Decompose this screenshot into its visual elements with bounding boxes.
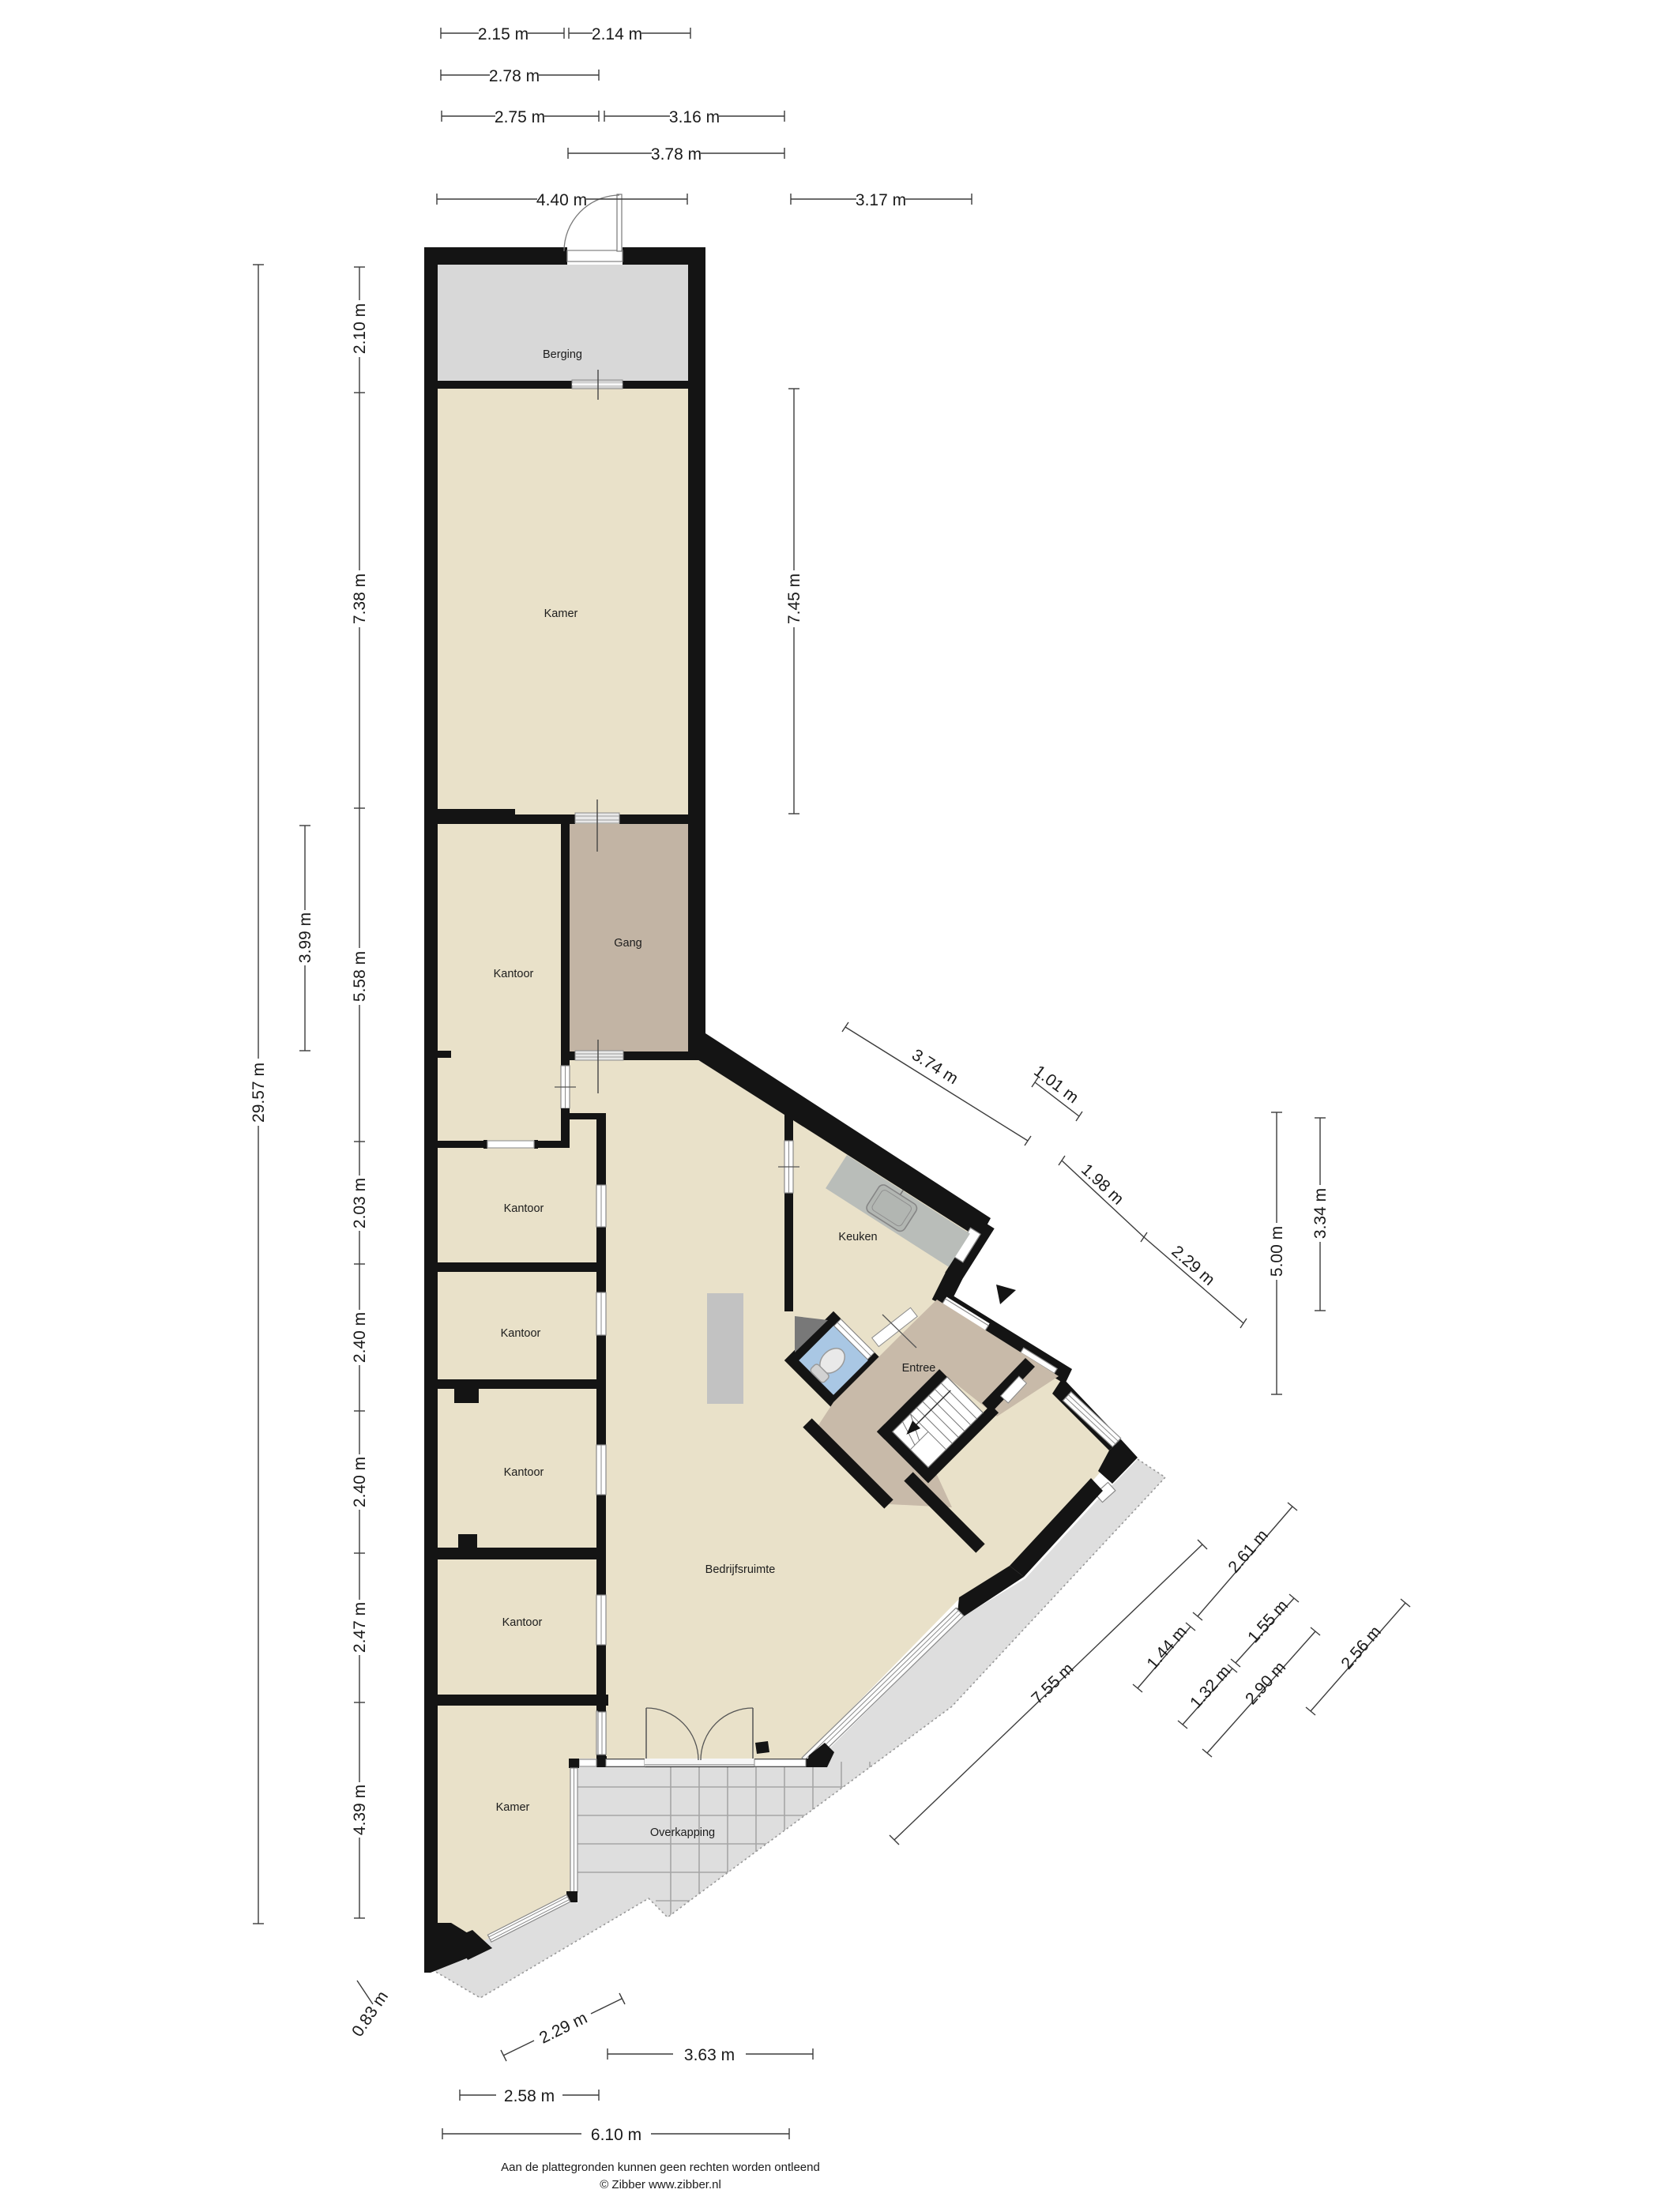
- svg-text:2.61 m: 2.61 m: [1224, 1526, 1271, 1577]
- svg-text:3.34 m: 3.34 m: [1311, 1188, 1330, 1239]
- svg-text:Keuken: Keuken: [838, 1231, 877, 1243]
- svg-text:2.47 m: 2.47 m: [351, 1602, 369, 1653]
- svg-text:6.10 m: 6.10 m: [591, 2126, 641, 2144]
- svg-text:2.40 m: 2.40 m: [351, 1457, 369, 1507]
- svg-text:2.10 m: 2.10 m: [351, 303, 369, 354]
- svg-text:Entree: Entree: [902, 1362, 936, 1375]
- svg-text:7.38 m: 7.38 m: [351, 574, 369, 624]
- svg-text:3.74 m: 3.74 m: [908, 1046, 961, 1089]
- svg-text:1.98 m: 1.98 m: [1078, 1161, 1127, 1209]
- svg-text:4.39 m: 4.39 m: [351, 1785, 369, 1835]
- svg-text:2.29 m: 2.29 m: [1168, 1242, 1218, 1288]
- svg-text:Aan de plattegronden kunnen ge: Aan de plattegronden kunnen geen rechten…: [501, 2161, 820, 2174]
- svg-text:Kantoor: Kantoor: [504, 1466, 544, 1479]
- svg-text:Kantoor: Kantoor: [502, 1616, 543, 1629]
- svg-text:Kamer: Kamer: [496, 1801, 530, 1814]
- svg-text:2.75 m: 2.75 m: [495, 108, 545, 126]
- svg-text:0.83 m: 0.83 m: [348, 1988, 392, 2040]
- svg-text:2.56 m: 2.56 m: [1337, 1623, 1384, 1673]
- svg-text:2.78 m: 2.78 m: [489, 67, 540, 85]
- svg-text:7.45 m: 7.45 m: [785, 574, 803, 624]
- svg-text:Kantoor: Kantoor: [501, 1327, 541, 1340]
- svg-text:2.40 m: 2.40 m: [351, 1312, 369, 1363]
- svg-text:2.03 m: 2.03 m: [351, 1178, 369, 1228]
- svg-text:2.58 m: 2.58 m: [504, 2087, 555, 2105]
- svg-text:Bedrijfsruimte: Bedrijfsruimte: [705, 1563, 776, 1576]
- svg-text:2.14 m: 2.14 m: [592, 25, 642, 43]
- svg-text:2.29 m: 2.29 m: [536, 2009, 590, 2048]
- svg-text:Gang: Gang: [614, 937, 641, 950]
- svg-text:3.63 m: 3.63 m: [684, 2046, 735, 2064]
- svg-text:2.90 m: 2.90 m: [1242, 1658, 1289, 1708]
- svg-text:Kantoor: Kantoor: [504, 1202, 544, 1215]
- svg-text:7.55 m: 7.55 m: [1028, 1660, 1077, 1708]
- svg-text:1.32 m: 1.32 m: [1187, 1662, 1234, 1712]
- svg-text:1.44 m: 1.44 m: [1143, 1623, 1190, 1673]
- svg-text:Overkapping: Overkapping: [650, 1826, 715, 1839]
- svg-text:5.00 m: 5.00 m: [1268, 1226, 1286, 1277]
- svg-text:© Zibber www.zibber.nl: © Zibber www.zibber.nl: [600, 2178, 721, 2191]
- svg-text:Berging: Berging: [543, 348, 582, 361]
- svg-text:Kantoor: Kantoor: [494, 968, 534, 980]
- svg-text:29.57 m: 29.57 m: [250, 1063, 268, 1123]
- svg-text:3.17 m: 3.17 m: [856, 191, 906, 209]
- svg-text:1.55 m: 1.55 m: [1244, 1597, 1292, 1646]
- svg-text:Kamer: Kamer: [544, 608, 578, 620]
- svg-text:3.78 m: 3.78 m: [651, 145, 702, 164]
- svg-text:5.58 m: 5.58 m: [351, 951, 369, 1002]
- svg-text:3.99 m: 3.99 m: [296, 912, 314, 963]
- svg-text:3.16 m: 3.16 m: [669, 108, 720, 126]
- svg-text:4.40 m: 4.40 m: [536, 191, 587, 209]
- svg-text:2.15 m: 2.15 m: [478, 25, 529, 43]
